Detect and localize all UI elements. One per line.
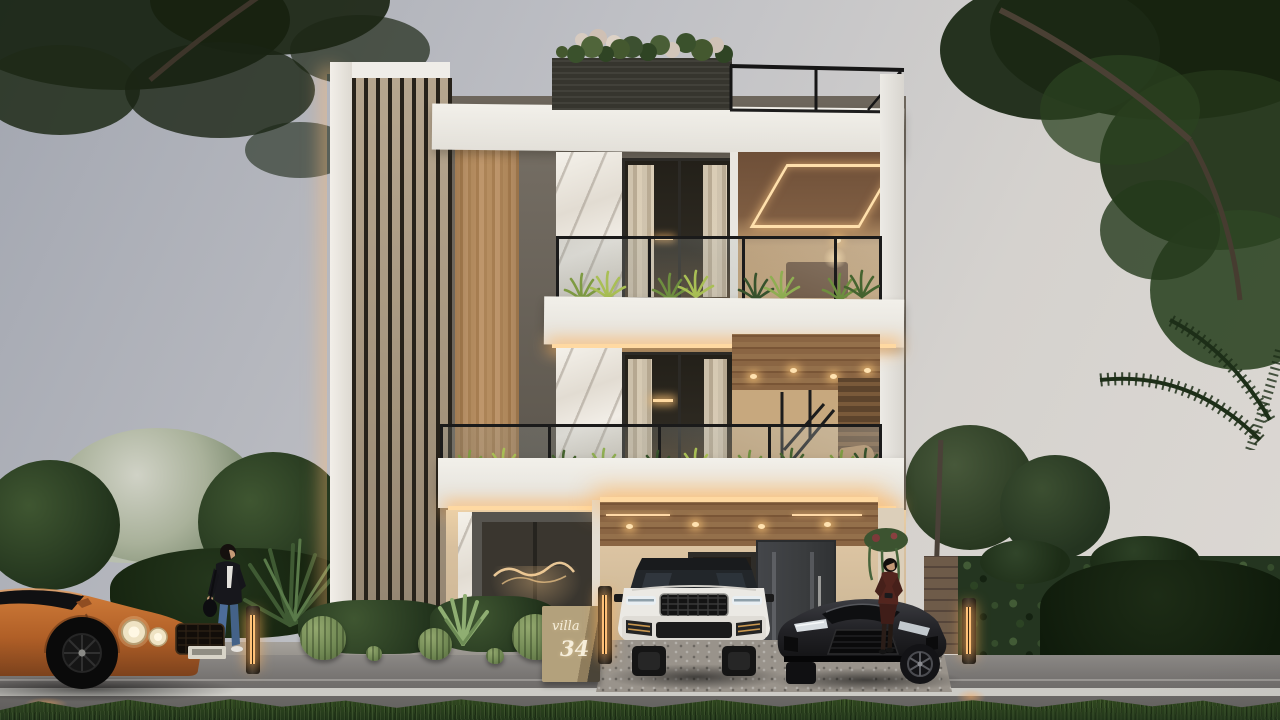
soffit-led-strip bbox=[606, 514, 670, 516]
bollard-light-center bbox=[598, 586, 612, 664]
carport-soffit bbox=[600, 502, 878, 546]
barrel-cactus bbox=[418, 628, 452, 660]
roof-planter-flowers bbox=[556, 46, 568, 58]
white-suv bbox=[612, 550, 776, 682]
barrel-cactus bbox=[300, 616, 346, 660]
railing-post bbox=[556, 239, 559, 305]
carport-downlight bbox=[758, 524, 765, 529]
woman-by-car bbox=[861, 555, 912, 659]
sign-line-2: 34 bbox=[560, 638, 589, 659]
hedge-bump bbox=[980, 540, 1070, 584]
interior-glow-mid-1 bbox=[653, 399, 673, 402]
architectural-render: villa 34 bbox=[0, 0, 1280, 720]
soffit-downlight bbox=[750, 374, 757, 379]
villa-number-sign: villa 34 bbox=[542, 606, 600, 682]
soffit-led-strip bbox=[792, 514, 862, 516]
bollard-led-strip bbox=[602, 595, 607, 654]
white-pier-right bbox=[880, 74, 904, 514]
barrel-cactus-small bbox=[366, 646, 382, 661]
barrel-cactus-small bbox=[486, 648, 504, 664]
soffit-downlight bbox=[830, 374, 837, 379]
soffit-downlight bbox=[864, 368, 871, 373]
carport-downlight bbox=[824, 522, 831, 527]
carport-downlight bbox=[626, 524, 633, 529]
roof-planter-box bbox=[552, 58, 732, 110]
balcony-plants-top bbox=[560, 252, 880, 302]
sign-line-1: villa bbox=[552, 620, 580, 633]
bollard-light-right bbox=[962, 598, 976, 664]
orange-coupe bbox=[0, 574, 238, 698]
bollard-led-strip bbox=[966, 607, 971, 654]
ceiling-led-rectangle bbox=[750, 164, 880, 228]
carport-downlight bbox=[692, 522, 699, 527]
soffit-downlight bbox=[790, 368, 797, 373]
louver-panel bbox=[352, 78, 452, 644]
black-sports-car bbox=[770, 584, 952, 686]
l-frame-side bbox=[330, 62, 352, 646]
